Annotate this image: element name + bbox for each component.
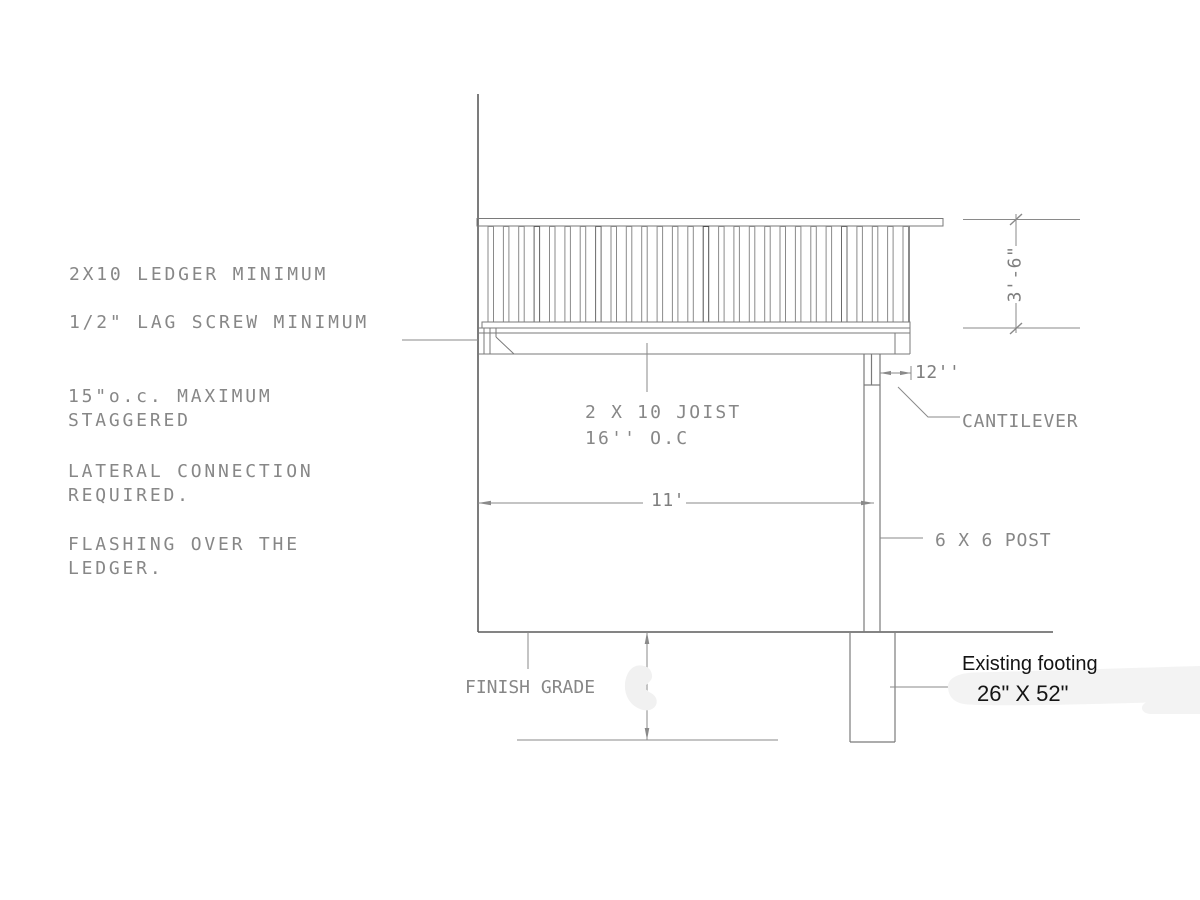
dim-cantilever-text: 12'' [915, 362, 960, 383]
label-finish-grade: FINISH GRADE [465, 676, 595, 699]
label-cantilever: CANTILEVER [962, 410, 1078, 433]
note-flashing-line2: LEDGER. [68, 557, 163, 580]
note-flashing-line1: FLASHING OVER THE [68, 533, 300, 556]
label-joist-line2: 16'' O.C [585, 427, 689, 450]
note-lateral-line1: LATERAL CONNECTION [68, 460, 313, 483]
note-spacing-line1: 15"o.c. MAXIMUM [68, 385, 273, 408]
label-joist-line1: 2 X 10 JOIST [585, 401, 741, 424]
drawing-linework [0, 0, 1200, 900]
post [864, 354, 880, 632]
dim-deck-span-text: 11' [651, 490, 685, 511]
ledger-flashing-detail [484, 328, 514, 354]
leader-cantilever [898, 387, 960, 417]
dimension-cantilever [880, 366, 911, 380]
note-lag-screw: 1/2" LAG SCREW MINIMUM [69, 311, 369, 334]
label-footing-title: Existing footing [962, 653, 1098, 676]
guardrail-cap [477, 219, 943, 227]
note-spacing-line2: STAGGERED [68, 409, 191, 432]
deck-section-drawing: 2X10 LEDGER MINIMUM 1/2" LAG SCREW MINIM… [0, 0, 1200, 900]
deck-band [478, 322, 910, 354]
whiteout-patch-small [625, 665, 657, 710]
dim-rail-height-text: 3'-6" [1005, 246, 1026, 303]
label-footing-size: 26" X 52" [977, 681, 1068, 707]
bottom-rail [482, 322, 910, 328]
footing [850, 633, 895, 742]
note-lateral-line2: REQUIRED. [68, 484, 191, 507]
balusters [488, 227, 910, 323]
note-ledger: 2X10 LEDGER MINIMUM [69, 263, 328, 286]
label-post: 6 X 6 POST [935, 529, 1051, 552]
